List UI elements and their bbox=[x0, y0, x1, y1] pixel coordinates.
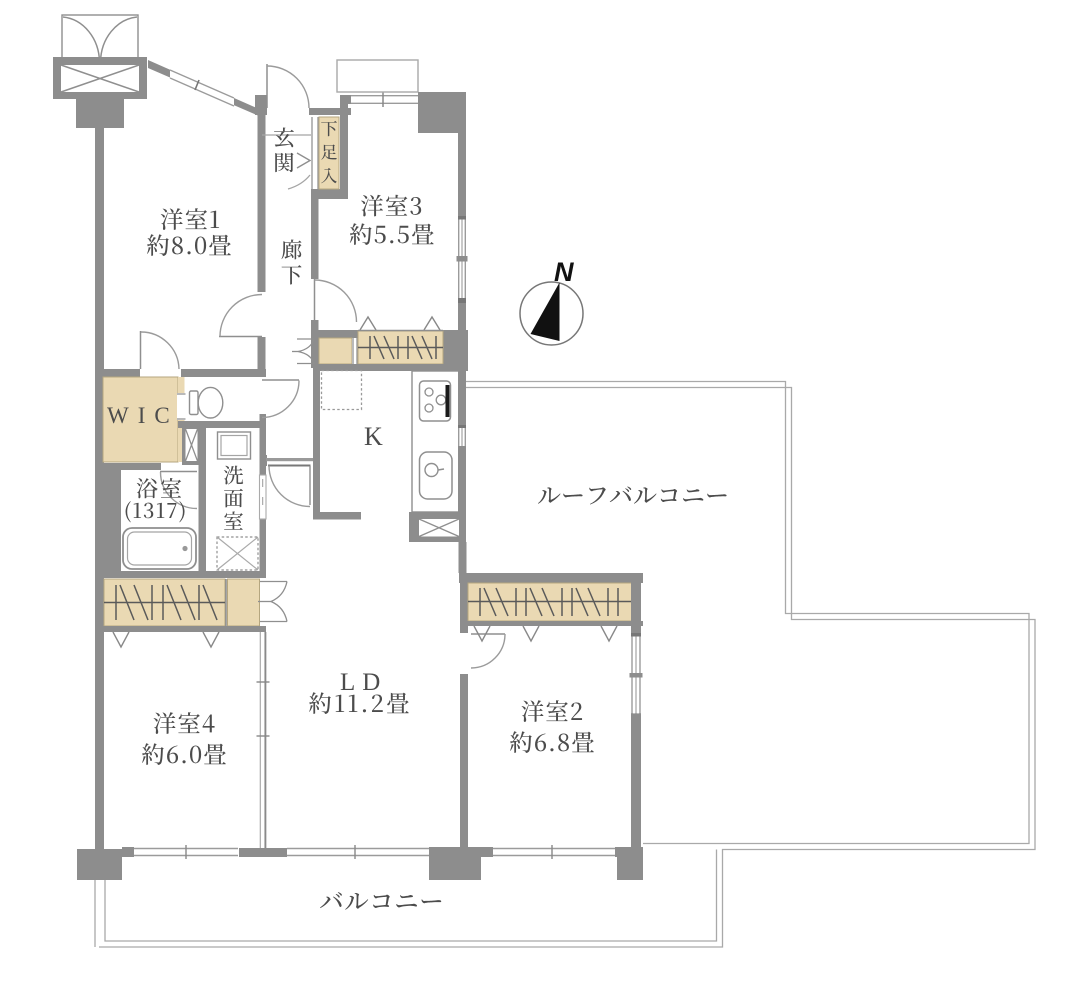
svg-text:K: K bbox=[364, 422, 383, 451]
svg-text:N: N bbox=[554, 257, 574, 287]
svg-text:WIC: WIC bbox=[107, 403, 179, 428]
svg-text:LD: LD bbox=[340, 669, 387, 696]
